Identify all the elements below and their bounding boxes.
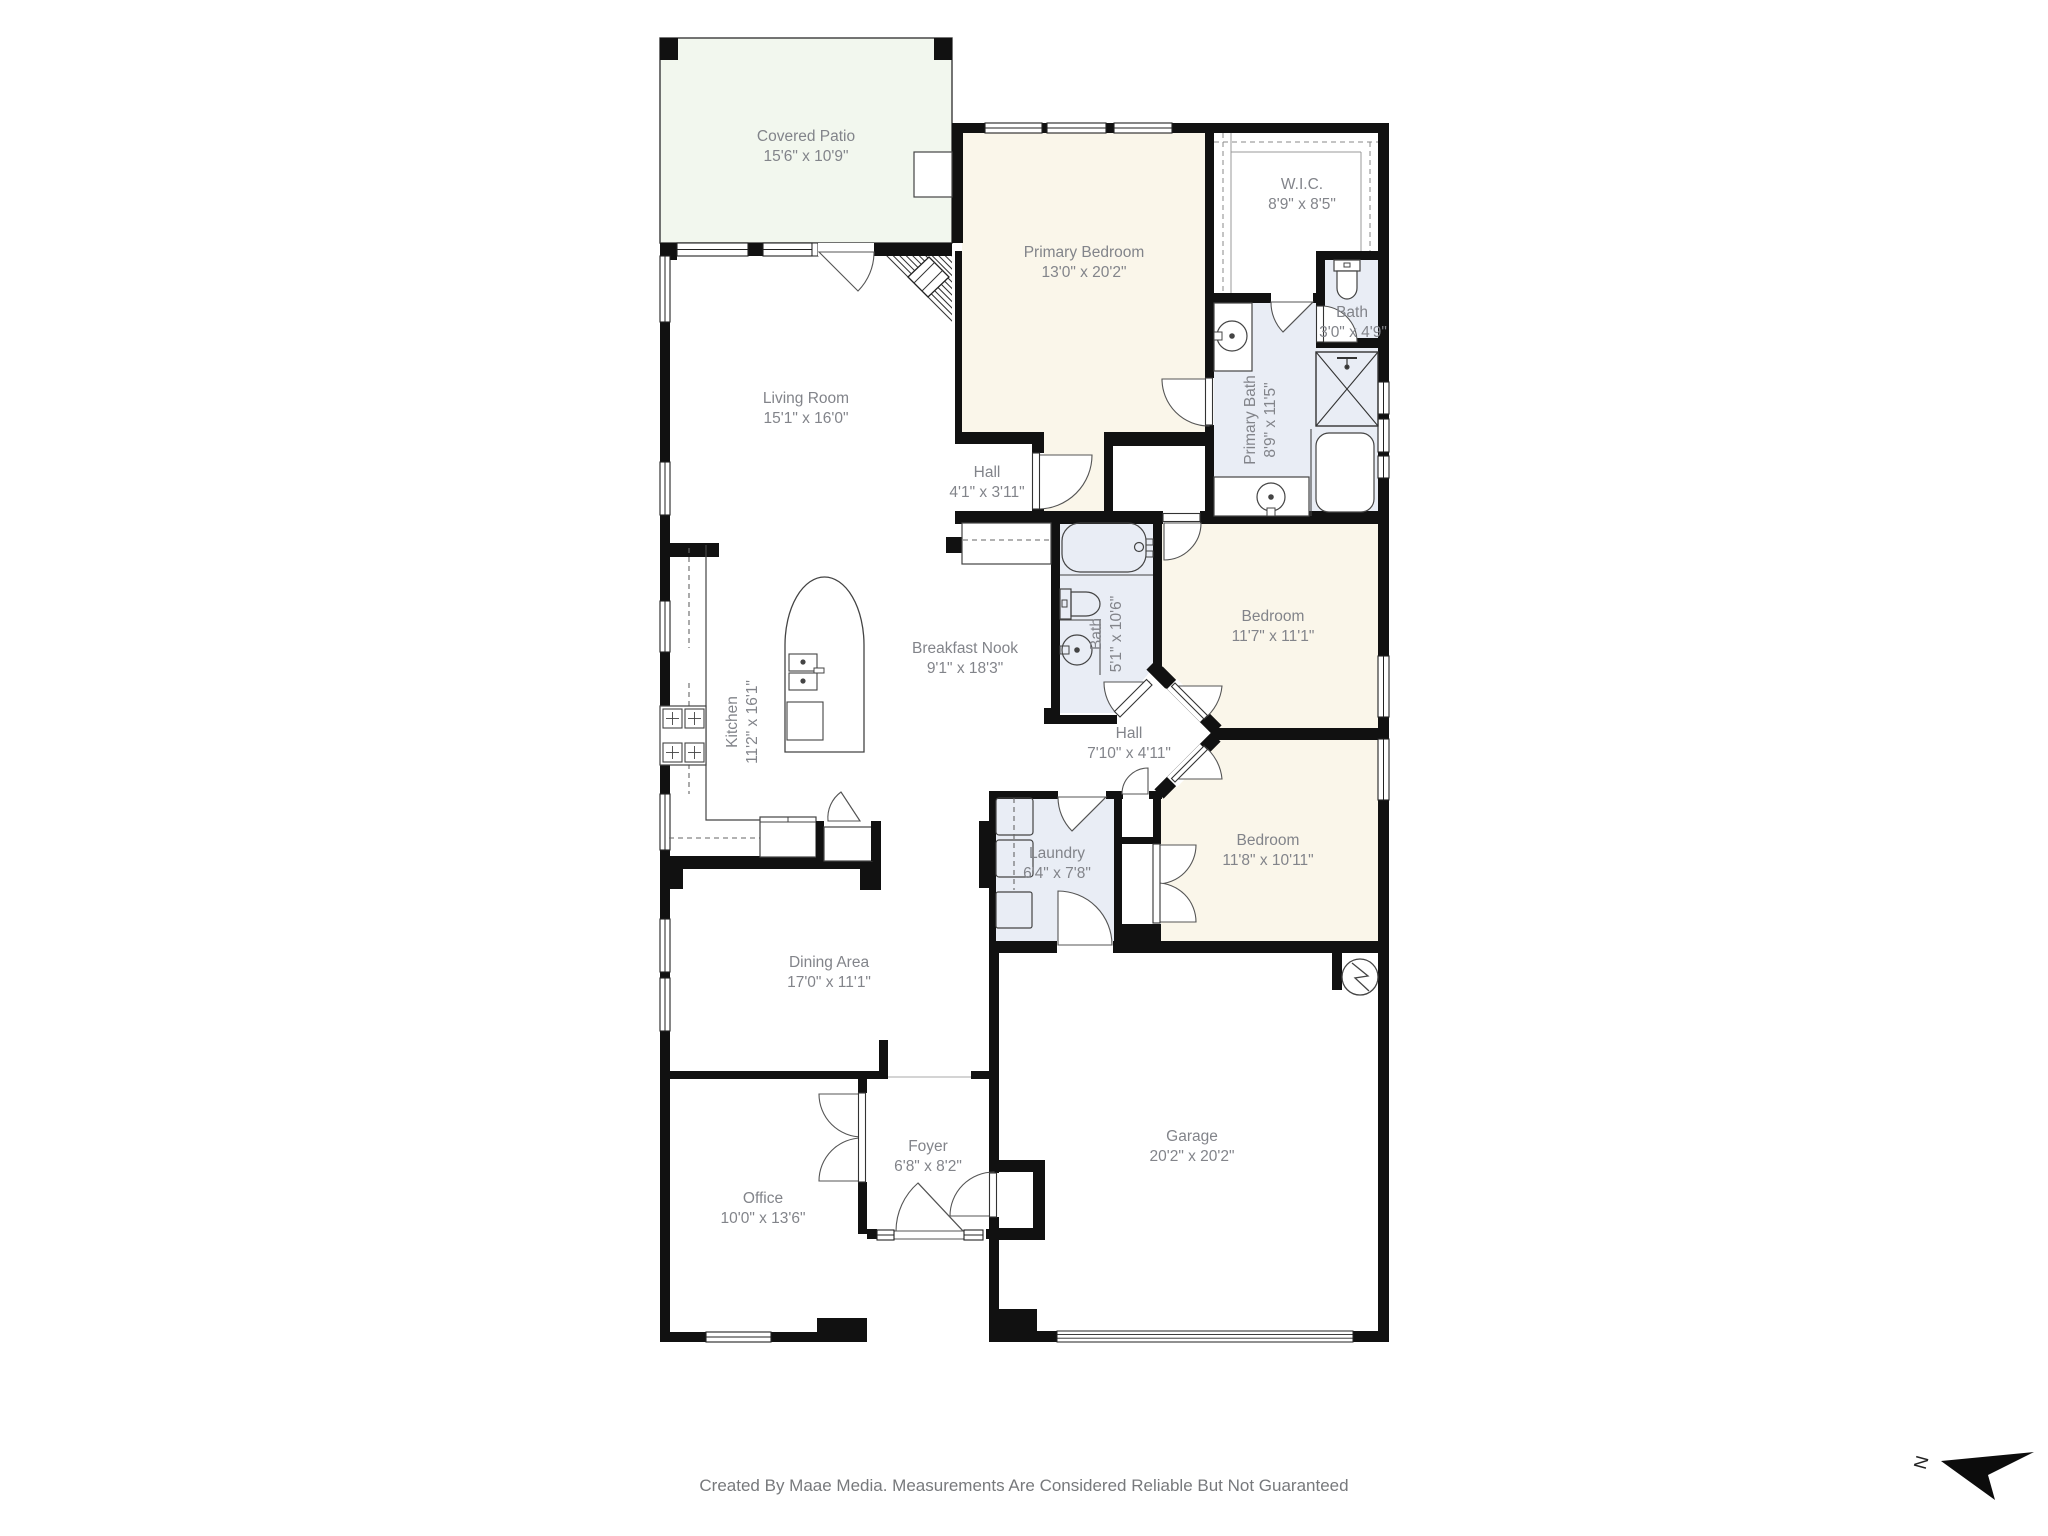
svg-text:Covered Patio: Covered Patio [757, 128, 855, 145]
svg-text:6'8" x 8'2": 6'8" x 8'2" [894, 1158, 962, 1175]
svg-text:15'1" x 16'0": 15'1" x 16'0" [763, 410, 848, 427]
svg-text:Bath: Bath [1336, 304, 1368, 321]
svg-text:W.I.C.: W.I.C. [1281, 176, 1323, 193]
svg-text:Garage: Garage [1166, 1128, 1218, 1145]
svg-text:Foyer: Foyer [908, 1138, 948, 1155]
svg-text:Created By Maae Media. Measure: Created By Maae Media. Measurements Are … [699, 1476, 1348, 1495]
svg-text:15'6" x 10'9": 15'6" x 10'9" [763, 148, 848, 165]
svg-text:10'0" x 13'6": 10'0" x 13'6" [720, 1210, 805, 1227]
svg-text:3'0" x 4'9": 3'0" x 4'9" [1319, 324, 1387, 341]
svg-text:Hall: Hall [1116, 725, 1143, 742]
svg-text:Bath: Bath [1088, 618, 1105, 650]
svg-text:Dining Area: Dining Area [789, 954, 870, 971]
svg-text:17'0" x 11'1": 17'0" x 11'1" [787, 974, 871, 991]
svg-text:20'2" x 20'2": 20'2" x 20'2" [1149, 1148, 1234, 1165]
svg-text:4'1" x 3'11": 4'1" x 3'11" [949, 484, 1024, 501]
svg-text:11'8" x 10'11": 11'8" x 10'11" [1222, 852, 1313, 869]
svg-text:Breakfast Nook: Breakfast Nook [912, 640, 1018, 657]
svg-text:Kitchen: Kitchen [724, 696, 741, 748]
svg-text:11'2" x 16'1": 11'2" x 16'1" [744, 680, 761, 764]
svg-text:Living Room: Living Room [763, 390, 849, 407]
svg-text:7'10" x 4'11": 7'10" x 4'11" [1087, 745, 1171, 762]
svg-text:Laundry: Laundry [1029, 845, 1085, 862]
svg-text:8'9" x 11'5": 8'9" x 11'5" [1262, 382, 1279, 457]
svg-text:5'1" x 10'6": 5'1" x 10'6" [1108, 596, 1125, 672]
svg-text:Hall: Hall [974, 464, 1001, 481]
svg-text:Primary Bedroom: Primary Bedroom [1024, 244, 1145, 261]
svg-text:8'9" x 8'5": 8'9" x 8'5" [1268, 196, 1336, 213]
svg-text:Bedroom: Bedroom [1237, 832, 1300, 849]
svg-text:13'0" x 20'2": 13'0" x 20'2" [1041, 264, 1126, 281]
svg-text:6'4" x 7'8": 6'4" x 7'8" [1023, 865, 1091, 882]
svg-text:Office: Office [743, 1190, 783, 1207]
svg-text:Bedroom: Bedroom [1242, 608, 1305, 625]
svg-text:Primary Bath: Primary Bath [1242, 375, 1259, 465]
svg-text:11'7" x 11'1": 11'7" x 11'1" [1232, 628, 1315, 645]
svg-text:9'1" x 18'3": 9'1" x 18'3" [927, 660, 1003, 677]
